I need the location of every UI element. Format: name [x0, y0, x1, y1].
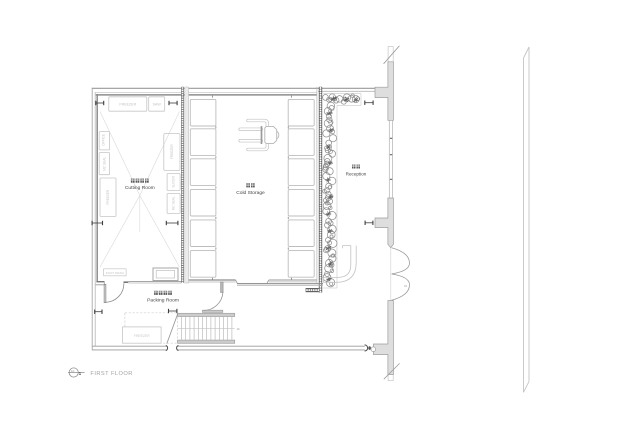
- svg-text:FREEZER: FREEZER: [106, 189, 110, 205]
- svg-text:FREEZER: FREEZER: [134, 334, 150, 338]
- svg-text:Cold Storage: Cold Storage: [236, 190, 265, 196]
- svg-text:FIRST FLOOR: FIRST FLOOR: [90, 371, 132, 377]
- svg-text:Reception: Reception: [346, 172, 367, 177]
- svg-text:MC SEAL: MC SEAL: [172, 196, 176, 210]
- svg-text:FREEZER: FREEZER: [119, 103, 136, 107]
- svg-text:Cutting Room: Cutting Room: [125, 185, 155, 191]
- svg-text:FREEZER: FREEZER: [170, 144, 174, 160]
- svg-text:MC SEAL: MC SEAL: [103, 156, 107, 170]
- svg-text:SLICER: SLICER: [172, 175, 176, 187]
- svg-text:FOOT WASH: FOOT WASH: [106, 271, 124, 275]
- svg-text:Packing Room: Packing Room: [147, 297, 179, 303]
- svg-text:1F: 1F: [237, 327, 241, 331]
- svg-text:OFFICE: OFFICE: [102, 134, 106, 146]
- svg-text:SAW: SAW: [153, 103, 162, 107]
- svg-text:1F: 1F: [71, 369, 75, 373]
- svg-text:1: 1: [79, 371, 82, 376]
- svg-text:±0: ±0: [404, 284, 408, 288]
